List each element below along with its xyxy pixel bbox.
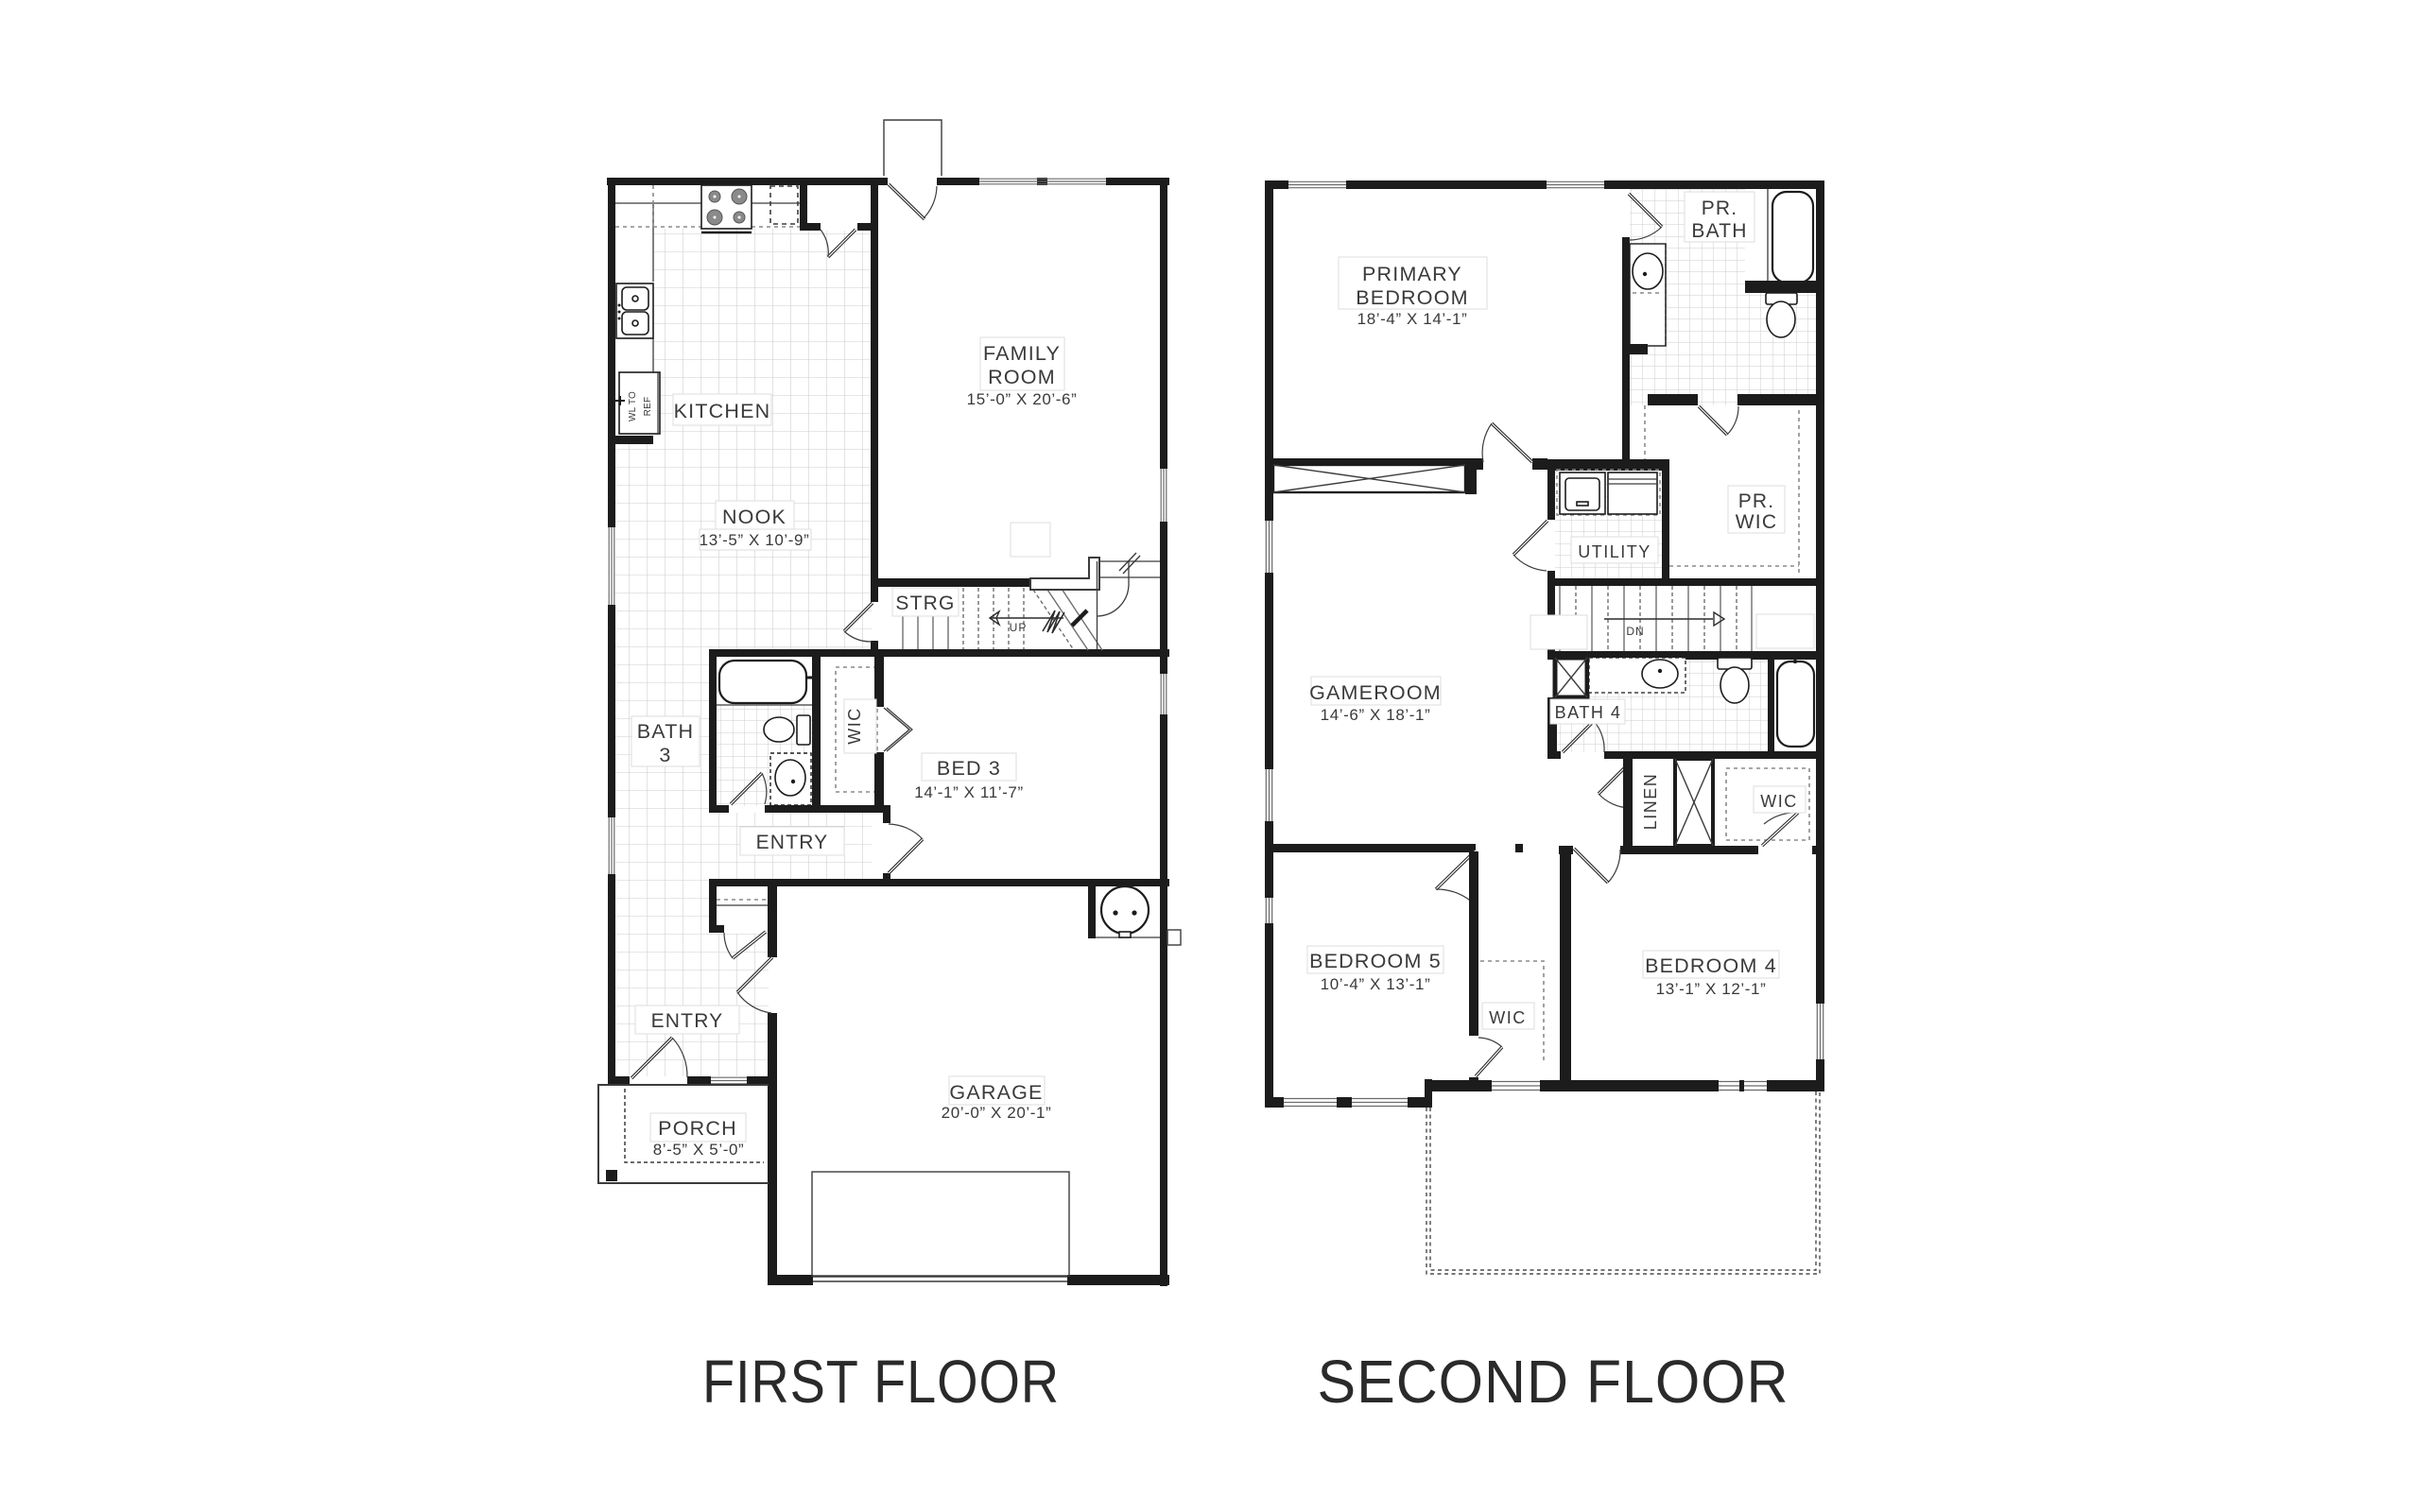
svg-text:10’-4” X 13’-1”: 10’-4” X 13’-1” bbox=[1321, 975, 1431, 993]
svg-text:PRIMARY: PRIMARY bbox=[1362, 263, 1462, 285]
svg-text:ENTRY: ENTRY bbox=[756, 832, 829, 853]
svg-text:BATH 4: BATH 4 bbox=[1555, 703, 1622, 722]
svg-text:18’-4” X 14’-1”: 18’-4” X 14’-1” bbox=[1357, 310, 1468, 328]
svg-text:UP: UP bbox=[1010, 621, 1028, 634]
svg-text:UTILITY: UTILITY bbox=[1578, 542, 1651, 561]
svg-text:15’-0” X 20’-6”: 15’-0” X 20’-6” bbox=[967, 390, 1078, 408]
svg-text:ENTRY: ENTRY bbox=[651, 1010, 724, 1032]
svg-text:BATH: BATH bbox=[637, 720, 695, 743]
svg-text:8’-5” X 5’-0”: 8’-5” X 5’-0” bbox=[653, 1141, 745, 1159]
svg-text:ROOM: ROOM bbox=[988, 366, 1056, 388]
svg-text:13’-1” X 12’-1”: 13’-1” X 12’-1” bbox=[1656, 980, 1767, 998]
svg-text:14’-6” X 18’-1”: 14’-6” X 18’-1” bbox=[1321, 706, 1431, 724]
svg-text:BED 3: BED 3 bbox=[937, 757, 1001, 780]
svg-text:STRG: STRG bbox=[895, 593, 955, 614]
svg-text:REF: REF bbox=[643, 397, 653, 417]
svg-text:GARAGE: GARAGE bbox=[949, 1081, 1043, 1104]
svg-text:14’-1” X 11’-7”: 14’-1” X 11’-7” bbox=[914, 783, 1023, 801]
svg-text:LINEN: LINEN bbox=[1641, 773, 1660, 831]
svg-text:NOOK: NOOK bbox=[722, 506, 786, 528]
svg-text:PR.: PR. bbox=[1738, 490, 1775, 512]
svg-text:WL TO: WL TO bbox=[628, 391, 638, 421]
svg-text:WIC: WIC bbox=[845, 707, 864, 745]
svg-text:BEDROOM 5: BEDROOM 5 bbox=[1309, 950, 1442, 972]
svg-text:DN: DN bbox=[1626, 625, 1644, 638]
svg-text:WIC: WIC bbox=[1760, 792, 1798, 811]
svg-text:BEDROOM 4: BEDROOM 4 bbox=[1645, 954, 1777, 977]
svg-text:KITCHEN: KITCHEN bbox=[674, 400, 771, 422]
svg-text:PR.: PR. bbox=[1702, 198, 1738, 219]
svg-text:WIC: WIC bbox=[1736, 511, 1777, 533]
svg-text:20’-0” X 20’-1”: 20’-0” X 20’-1” bbox=[942, 1104, 1052, 1122]
svg-text:WIC: WIC bbox=[1489, 1008, 1527, 1027]
svg-text:3: 3 bbox=[659, 744, 671, 766]
svg-text:FAMILY: FAMILY bbox=[983, 342, 1061, 365]
svg-text:BEDROOM: BEDROOM bbox=[1356, 286, 1469, 309]
svg-text:GAMEROOM: GAMEROOM bbox=[1309, 681, 1442, 704]
svg-text:13’-5” X 10’-9”: 13’-5” X 10’-9” bbox=[700, 531, 810, 549]
svg-text:PORCH: PORCH bbox=[658, 1117, 737, 1140]
svg-text:FIRST FLOOR: FIRST FLOOR bbox=[702, 1348, 1060, 1416]
svg-text:SECOND FLOOR: SECOND FLOOR bbox=[1318, 1348, 1789, 1416]
svg-text:BATH: BATH bbox=[1691, 220, 1747, 242]
